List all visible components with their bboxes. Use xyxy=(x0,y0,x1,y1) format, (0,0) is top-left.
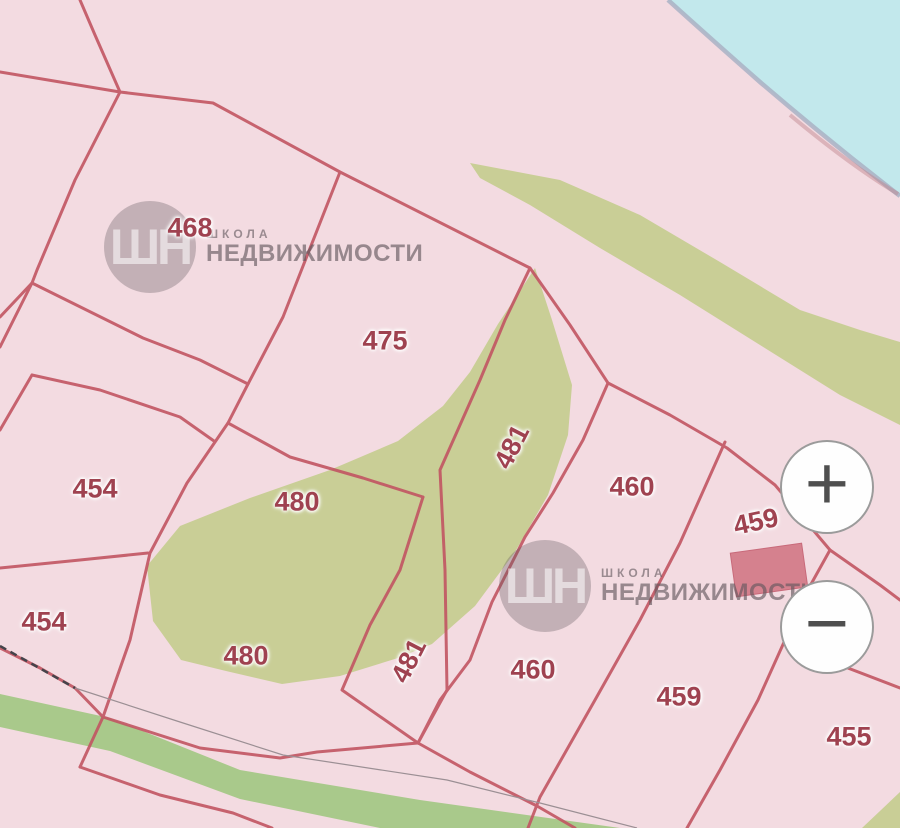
parcel-label-480-4: 480 xyxy=(274,487,319,518)
dashed-boundary xyxy=(0,646,75,688)
vegetation-corner xyxy=(862,792,900,828)
zoom-in-button[interactable]: + xyxy=(780,440,874,534)
parcel-label-455-12: 455 xyxy=(826,722,871,753)
parcel-label-460-9: 460 xyxy=(510,655,555,686)
zoom-out-button[interactable]: − xyxy=(780,580,874,674)
building-footprint xyxy=(730,543,807,597)
parcel-label-454-2: 454 xyxy=(72,474,117,505)
parcel-label-475-1: 475 xyxy=(362,326,407,357)
parcel-label-460-8: 460 xyxy=(609,472,654,503)
road-strip xyxy=(0,694,620,828)
parcel-label-454-3: 454 xyxy=(21,607,66,638)
parcel-label-480-5: 480 xyxy=(223,641,268,672)
parcel-label-468-0: 468 xyxy=(167,213,212,244)
map-stage: ШНШКОЛАНЕДВИЖИМОСТИШНШКОЛАНЕДВИЖИМОСТИ 4… xyxy=(0,0,900,828)
map-canvas[interactable] xyxy=(0,0,900,828)
parcel-label-459-11: 459 xyxy=(656,682,701,713)
